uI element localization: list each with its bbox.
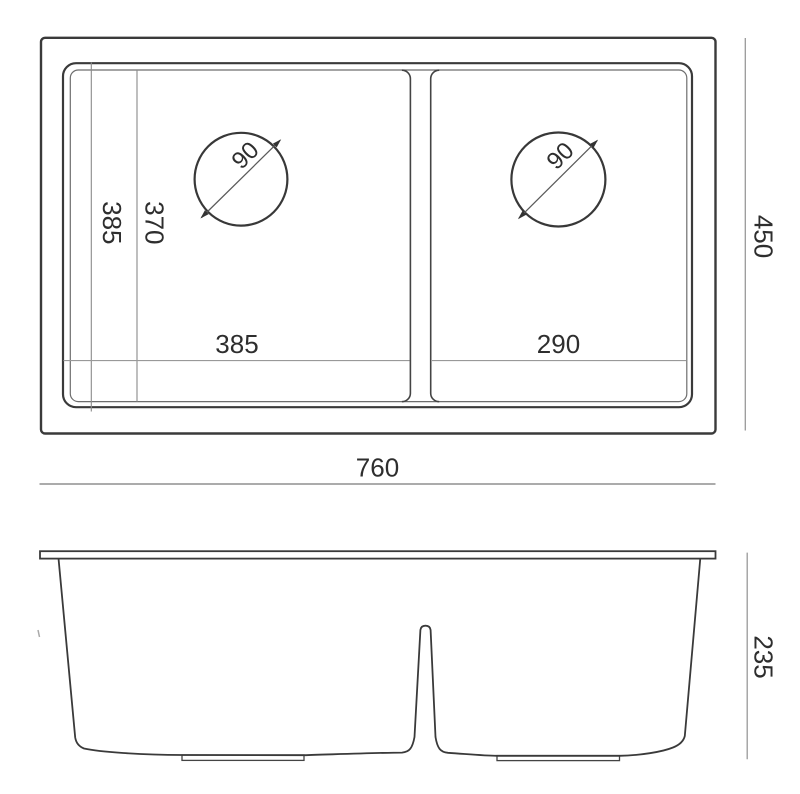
svg-text:450: 450 (749, 215, 779, 258)
svg-text:290: 290 (537, 329, 580, 359)
svg-text:385: 385 (97, 201, 127, 244)
svg-text:385: 385 (215, 329, 258, 359)
svg-text:760: 760 (356, 452, 399, 482)
svg-text:235: 235 (749, 635, 779, 678)
svg-text:370: 370 (139, 201, 169, 244)
